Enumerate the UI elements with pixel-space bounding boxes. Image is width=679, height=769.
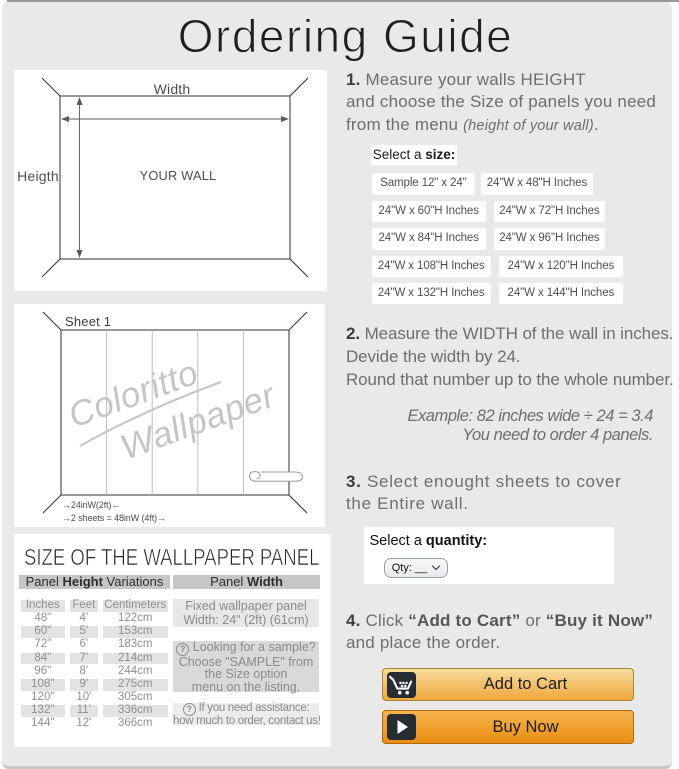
svg-text:YOUR WALL: YOUR WALL [140,168,217,183]
svg-text:→24inW(2ft)←: →24inW(2ft)← [62,500,120,510]
svg-text:Width: Width [154,81,191,97]
svg-text:Heigth: Heigth [17,168,59,184]
svg-text:→2 sheets = 48inW (4ft)→: →2 sheets = 48inW (4ft)→ [62,513,166,523]
svg-text:Sheet 1: Sheet 1 [65,314,111,329]
